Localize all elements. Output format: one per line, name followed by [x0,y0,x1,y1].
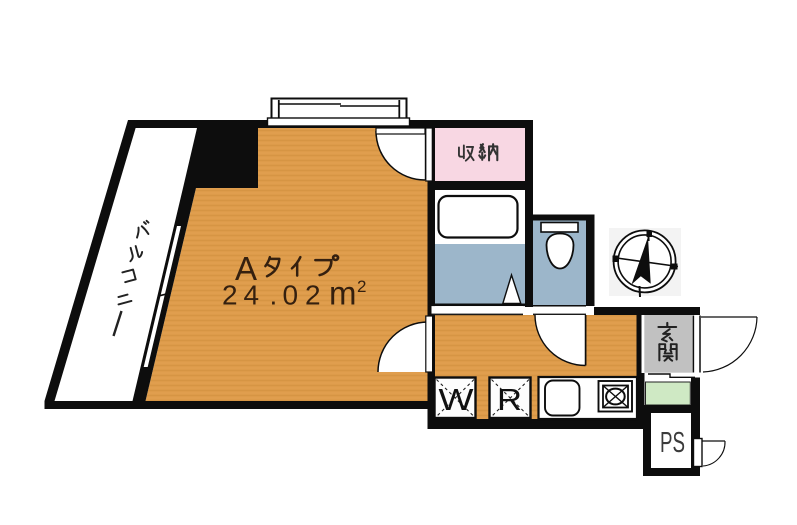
svg-text:4: 4 [244,280,260,311]
svg-text:2: 2 [222,280,238,311]
svg-text:PS: PS [660,427,685,459]
svg-text:m: m [329,275,357,312]
svg-text:0: 0 [283,280,299,311]
svg-text:W: W [439,382,475,417]
svg-text:.: . [270,280,278,311]
svg-text:R: R [497,382,522,417]
svg-text:2: 2 [305,280,321,311]
svg-text:2: 2 [357,277,366,296]
